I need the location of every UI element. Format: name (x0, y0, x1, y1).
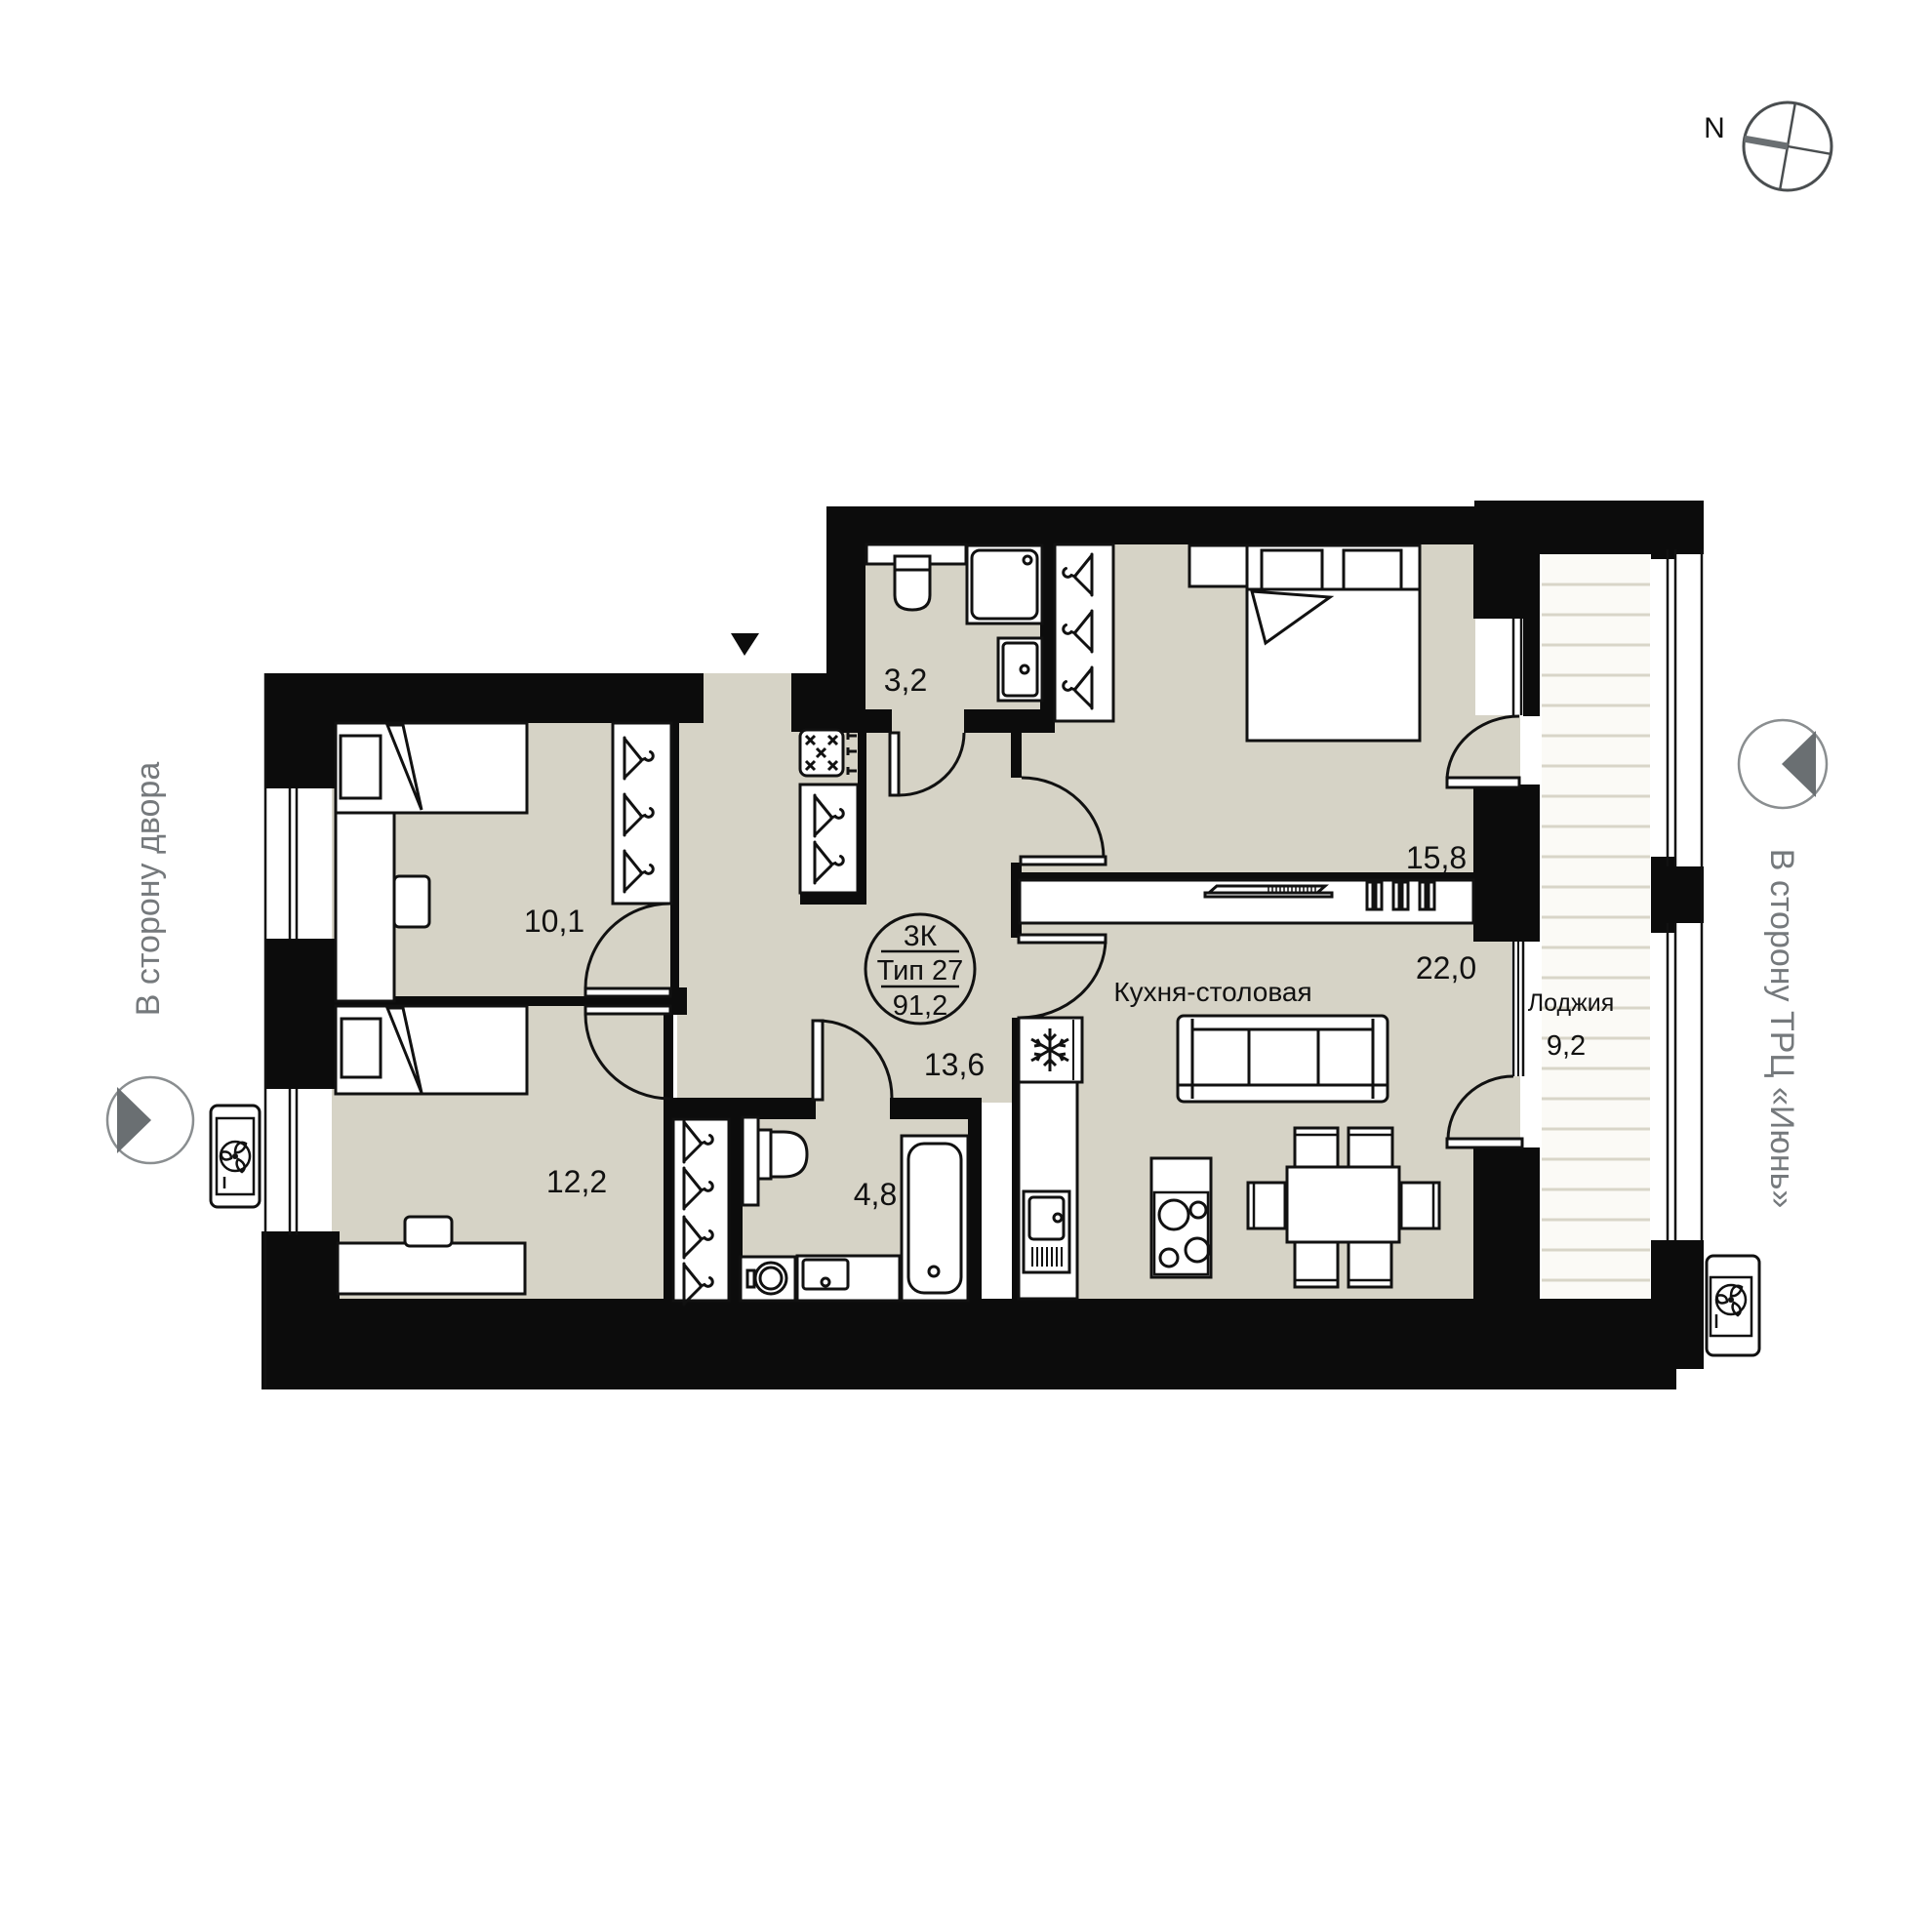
svg-text:15,8: 15,8 (1406, 840, 1467, 875)
svg-text:Тип 27: Тип 27 (877, 955, 964, 986)
svg-text:10,1: 10,1 (524, 904, 584, 939)
svg-text:3К: 3К (904, 920, 938, 952)
svg-text:В сторону ТРЦ «Июнь»: В сторону ТРЦ «Июнь» (1763, 849, 1800, 1209)
svg-text:12,2: 12,2 (546, 1164, 607, 1199)
svg-text:22,0: 22,0 (1416, 950, 1476, 986)
svg-text:N: N (1704, 112, 1725, 144)
svg-text:9,2: 9,2 (1547, 1030, 1586, 1062)
svg-text:4,8: 4,8 (854, 1177, 897, 1212)
svg-text:Лоджия: Лоджия (1528, 989, 1615, 1017)
svg-text:В сторону двора: В сторону двора (130, 762, 167, 1017)
svg-text:Кухня-столовая: Кухня-столовая (1113, 977, 1311, 1007)
svg-text:3,2: 3,2 (884, 663, 927, 698)
svg-text:13,6: 13,6 (924, 1047, 985, 1082)
svg-text:91,2: 91,2 (893, 990, 947, 1022)
